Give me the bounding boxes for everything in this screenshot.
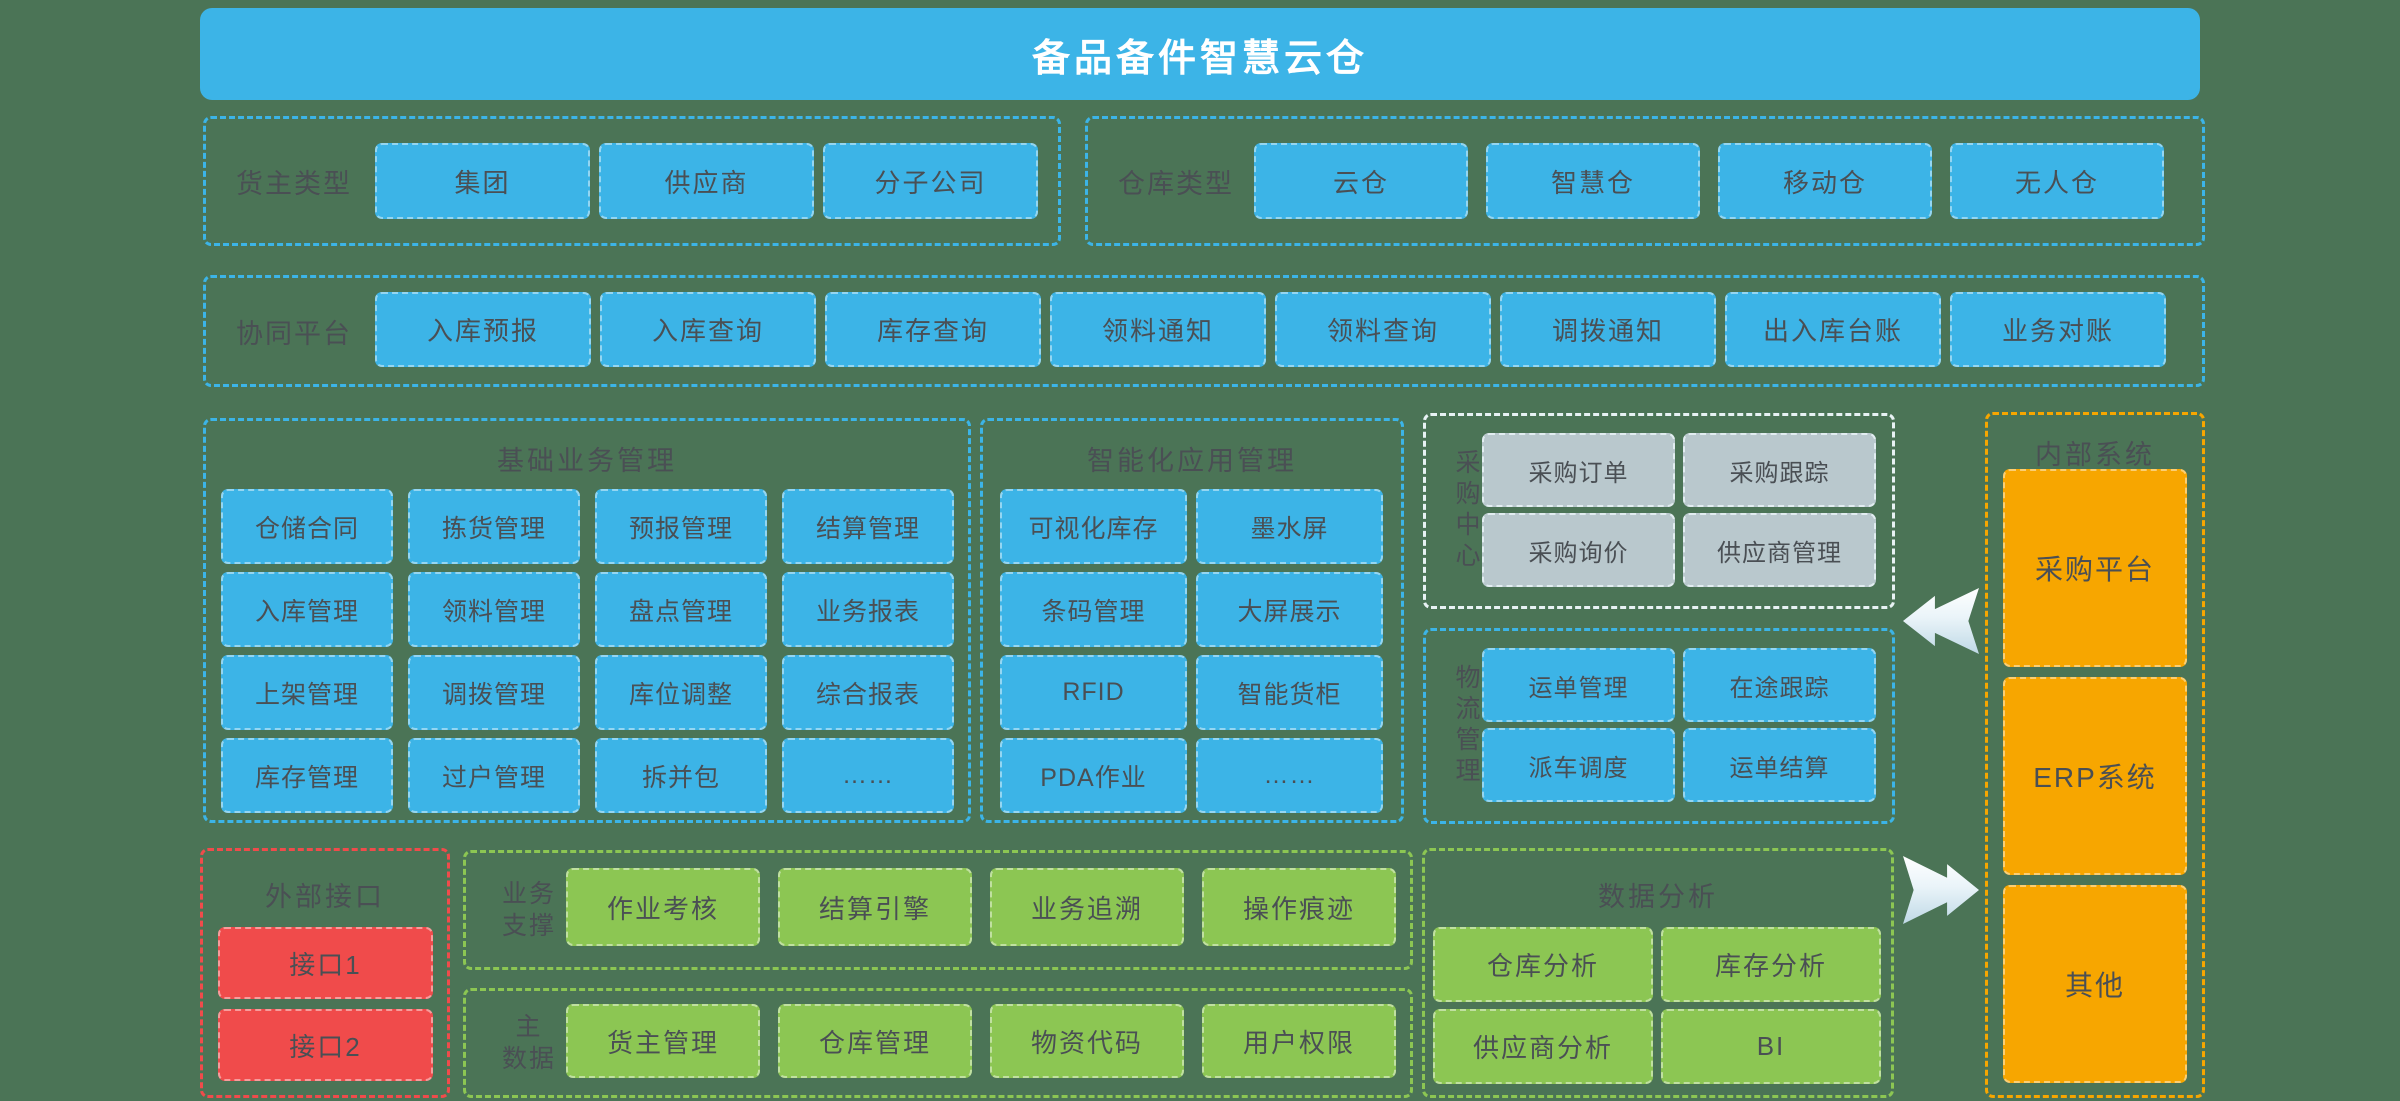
system-box: 采购平台 xyxy=(2003,469,2187,667)
module-box: 可视化库存 xyxy=(1000,489,1187,564)
arrow-left-icon xyxy=(1903,588,1979,654)
module-box: 预报管理 xyxy=(595,489,767,564)
module-box: 无人仓 xyxy=(1950,143,2164,219)
module-box: 库位调整 xyxy=(595,655,767,730)
interface-box: 接口2 xyxy=(218,1009,433,1081)
module-box: 运单结算 xyxy=(1683,728,1876,802)
module-box: 调拨通知 xyxy=(1500,292,1716,367)
panel-business-support: 业务 支撑 作业考核 结算引擎 业务追溯 操作痕迹 xyxy=(463,850,1413,970)
module-box: 结算管理 xyxy=(782,489,954,564)
module-box: BI xyxy=(1661,1009,1881,1084)
internal-systems-grid: 采购平台 ERP系统 其他 xyxy=(2003,469,2187,1083)
module-box: 作业考核 xyxy=(566,868,760,946)
module-box: 用户权限 xyxy=(1202,1004,1396,1078)
module-box: 上架管理 xyxy=(221,655,393,730)
external-interface-grid: 接口1 接口2 xyxy=(218,927,433,1081)
module-box: 结算引擎 xyxy=(778,868,972,946)
panel-master-data: 主 数据 货主管理 仓库管理 物资代码 用户权限 xyxy=(463,988,1413,1098)
logistics-label: 物流管理 xyxy=(1448,631,1484,821)
module-box: RFID xyxy=(1000,655,1187,730)
smart-app-grid: 可视化库存 墨水屏 条码管理 大屏展示 RFID 智能货柜 PDA作业 …… xyxy=(1000,489,1383,813)
main-title-banner: 备品备件智慧云仓 xyxy=(200,8,2200,100)
module-box: 库存分析 xyxy=(1661,927,1881,1002)
module-box: 库存查询 xyxy=(825,292,1041,367)
module-box: 调拨管理 xyxy=(408,655,580,730)
module-box: 仓库管理 xyxy=(778,1004,972,1078)
module-box: 出入库台账 xyxy=(1725,292,1941,367)
module-box: 移动仓 xyxy=(1718,143,1932,219)
module-box: 集团 xyxy=(375,143,590,219)
module-box: 供应商 xyxy=(599,143,814,219)
module-box: 入库管理 xyxy=(221,572,393,647)
module-box: 仓储合同 xyxy=(221,489,393,564)
module-box: 分子公司 xyxy=(823,143,1038,219)
module-box: 采购询价 xyxy=(1482,513,1675,587)
warehouse-type-label: 仓库类型 xyxy=(1118,119,1234,243)
panel-warehouse-type: 仓库类型 云仓 智慧仓 移动仓 无人仓 xyxy=(1085,116,2205,246)
module-box: 墨水屏 xyxy=(1196,489,1383,564)
data-analysis-title: 数据分析 xyxy=(1425,875,1891,914)
data-analysis-grid: 仓库分析 库存分析 供应商分析 BI xyxy=(1433,927,1881,1084)
module-box: 拆并包 xyxy=(595,738,767,813)
owner-type-label: 货主类型 xyxy=(236,119,352,243)
module-box: 派车调度 xyxy=(1482,728,1675,802)
module-box: 业务对账 xyxy=(1950,292,2166,367)
panel-external-interface: 外部接口 接口1 接口2 xyxy=(200,848,450,1098)
module-box: 条码管理 xyxy=(1000,572,1187,647)
module-box: 采购跟踪 xyxy=(1683,433,1876,507)
module-box: 供应商管理 xyxy=(1683,513,1876,587)
module-box: 入库预报 xyxy=(375,292,591,367)
business-support-label: 业务 支撑 xyxy=(502,853,556,967)
module-box: 供应商分析 xyxy=(1433,1009,1653,1084)
panel-owner-type: 货主类型 集团 供应商 分子公司 xyxy=(203,116,1061,246)
module-box: 领料查询 xyxy=(1275,292,1491,367)
system-box: ERP系统 xyxy=(2003,677,2187,875)
collab-platform-label: 协同平台 xyxy=(236,278,352,384)
panel-internal-systems: 内部系统 采购平台 ERP系统 其他 xyxy=(1985,412,2205,1098)
collab-platform-grid: 入库预报 入库查询 库存查询 领料通知 领料查询 调拨通知 出入库台账 业务对账 xyxy=(375,292,2166,367)
basic-business-grid: 仓储合同 拣货管理 预报管理 结算管理 入库管理 领料管理 盘点管理 业务报表 … xyxy=(221,489,954,813)
module-box: 领料管理 xyxy=(408,572,580,647)
module-box: 智能货柜 xyxy=(1196,655,1383,730)
module-box: 操作痕迹 xyxy=(1202,868,1396,946)
owner-type-grid: 集团 供应商 分子公司 xyxy=(375,143,1038,219)
module-box: 库存管理 xyxy=(221,738,393,813)
module-box: 盘点管理 xyxy=(595,572,767,647)
panel-data-analysis: 数据分析 仓库分析 库存分析 供应商分析 BI xyxy=(1422,848,1894,1098)
master-data-grid: 货主管理 仓库管理 物资代码 用户权限 xyxy=(566,1004,1396,1078)
module-box-ellipsis: …… xyxy=(782,738,954,813)
module-box: 业务报表 xyxy=(782,572,954,647)
panel-smart-app: 智能化应用管理 可视化库存 墨水屏 条码管理 大屏展示 RFID 智能货柜 PD… xyxy=(980,418,1404,823)
external-interface-title: 外部接口 xyxy=(203,875,447,914)
module-box: 智慧仓 xyxy=(1486,143,1700,219)
module-box: 云仓 xyxy=(1254,143,1468,219)
panel-basic-business: 基础业务管理 仓储合同 拣货管理 预报管理 结算管理 入库管理 领料管理 盘点管… xyxy=(203,418,971,823)
procurement-center-label: 采购中心 xyxy=(1448,416,1484,606)
master-data-label: 主 数据 xyxy=(502,991,556,1095)
module-box: 入库查询 xyxy=(600,292,816,367)
panel-procurement-center: 采购中心 采购订单 采购跟踪 采购询价 供应商管理 xyxy=(1423,413,1895,609)
module-box: 货主管理 xyxy=(566,1004,760,1078)
module-box: 仓库分析 xyxy=(1433,927,1653,1002)
module-box-ellipsis: …… xyxy=(1196,738,1383,813)
procurement-center-grid: 采购订单 采购跟踪 采购询价 供应商管理 xyxy=(1482,433,1876,587)
module-box: 物资代码 xyxy=(990,1004,1184,1078)
module-box: 过户管理 xyxy=(408,738,580,813)
module-box: 运单管理 xyxy=(1482,648,1675,722)
panel-collab-platform: 协同平台 入库预报 入库查询 库存查询 领料通知 领料查询 调拨通知 出入库台账… xyxy=(203,275,2205,387)
module-box: 综合报表 xyxy=(782,655,954,730)
internal-systems-title: 内部系统 xyxy=(1988,433,2202,472)
warehouse-type-grid: 云仓 智慧仓 移动仓 无人仓 xyxy=(1254,143,2164,219)
logistics-grid: 运单管理 在途跟踪 派车调度 运单结算 xyxy=(1482,648,1876,802)
module-box: PDA作业 xyxy=(1000,738,1187,813)
system-box: 其他 xyxy=(2003,885,2187,1083)
main-title: 备品备件智慧云仓 xyxy=(1032,27,1368,82)
module-box: 大屏展示 xyxy=(1196,572,1383,647)
interface-box: 接口1 xyxy=(218,927,433,999)
panel-logistics: 物流管理 运单管理 在途跟踪 派车调度 运单结算 xyxy=(1423,628,1895,824)
module-box: 采购订单 xyxy=(1482,433,1675,507)
module-box: 拣货管理 xyxy=(408,489,580,564)
module-box: 在途跟踪 xyxy=(1683,648,1876,722)
smart-app-title: 智能化应用管理 xyxy=(983,439,1401,478)
business-support-grid: 作业考核 结算引擎 业务追溯 操作痕迹 xyxy=(566,868,1396,946)
basic-business-title: 基础业务管理 xyxy=(206,439,968,478)
arrow-right-icon xyxy=(1903,856,1979,924)
module-box: 业务追溯 xyxy=(990,868,1184,946)
module-box: 领料通知 xyxy=(1050,292,1266,367)
